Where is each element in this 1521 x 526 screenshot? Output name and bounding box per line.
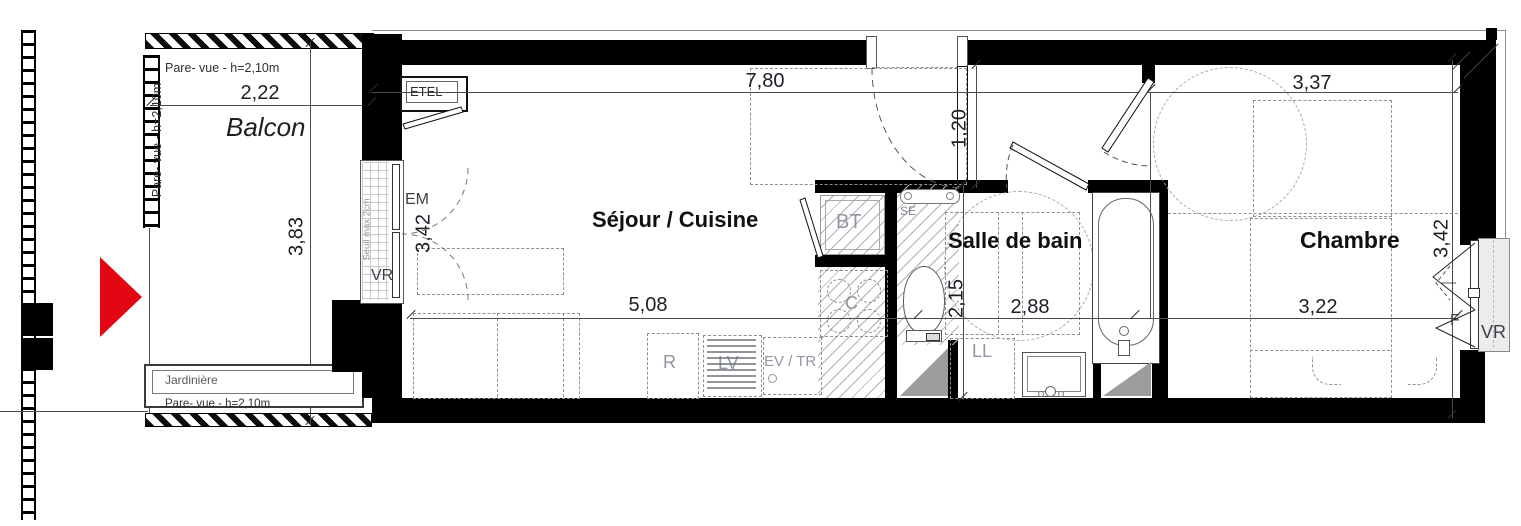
corner-mark (1464, 44, 1498, 78)
bay-window-arc (402, 168, 468, 234)
floor-plan: Jardinière Pare- vue - h=2,10m Pare- vue… (0, 0, 1521, 526)
entrance-door-arc (872, 68, 962, 188)
corner-mark (1452, 52, 1470, 70)
bathroom-door-leaf (1010, 142, 1089, 190)
plan-linework (0, 0, 1521, 526)
bath-floor-wedge (1103, 362, 1151, 396)
bedroom-door-leaf (1102, 78, 1154, 152)
casement-triangle (1436, 310, 1475, 347)
bedroom-door-arc (1104, 152, 1150, 166)
water-heater-door-leaf (800, 198, 823, 258)
bathroom-door-arc (1006, 145, 1013, 188)
etel-door-leaf (403, 107, 463, 129)
casement-triangle (1433, 243, 1475, 310)
wc-floor-wedge (900, 348, 948, 396)
bay-window-arc (402, 234, 468, 300)
